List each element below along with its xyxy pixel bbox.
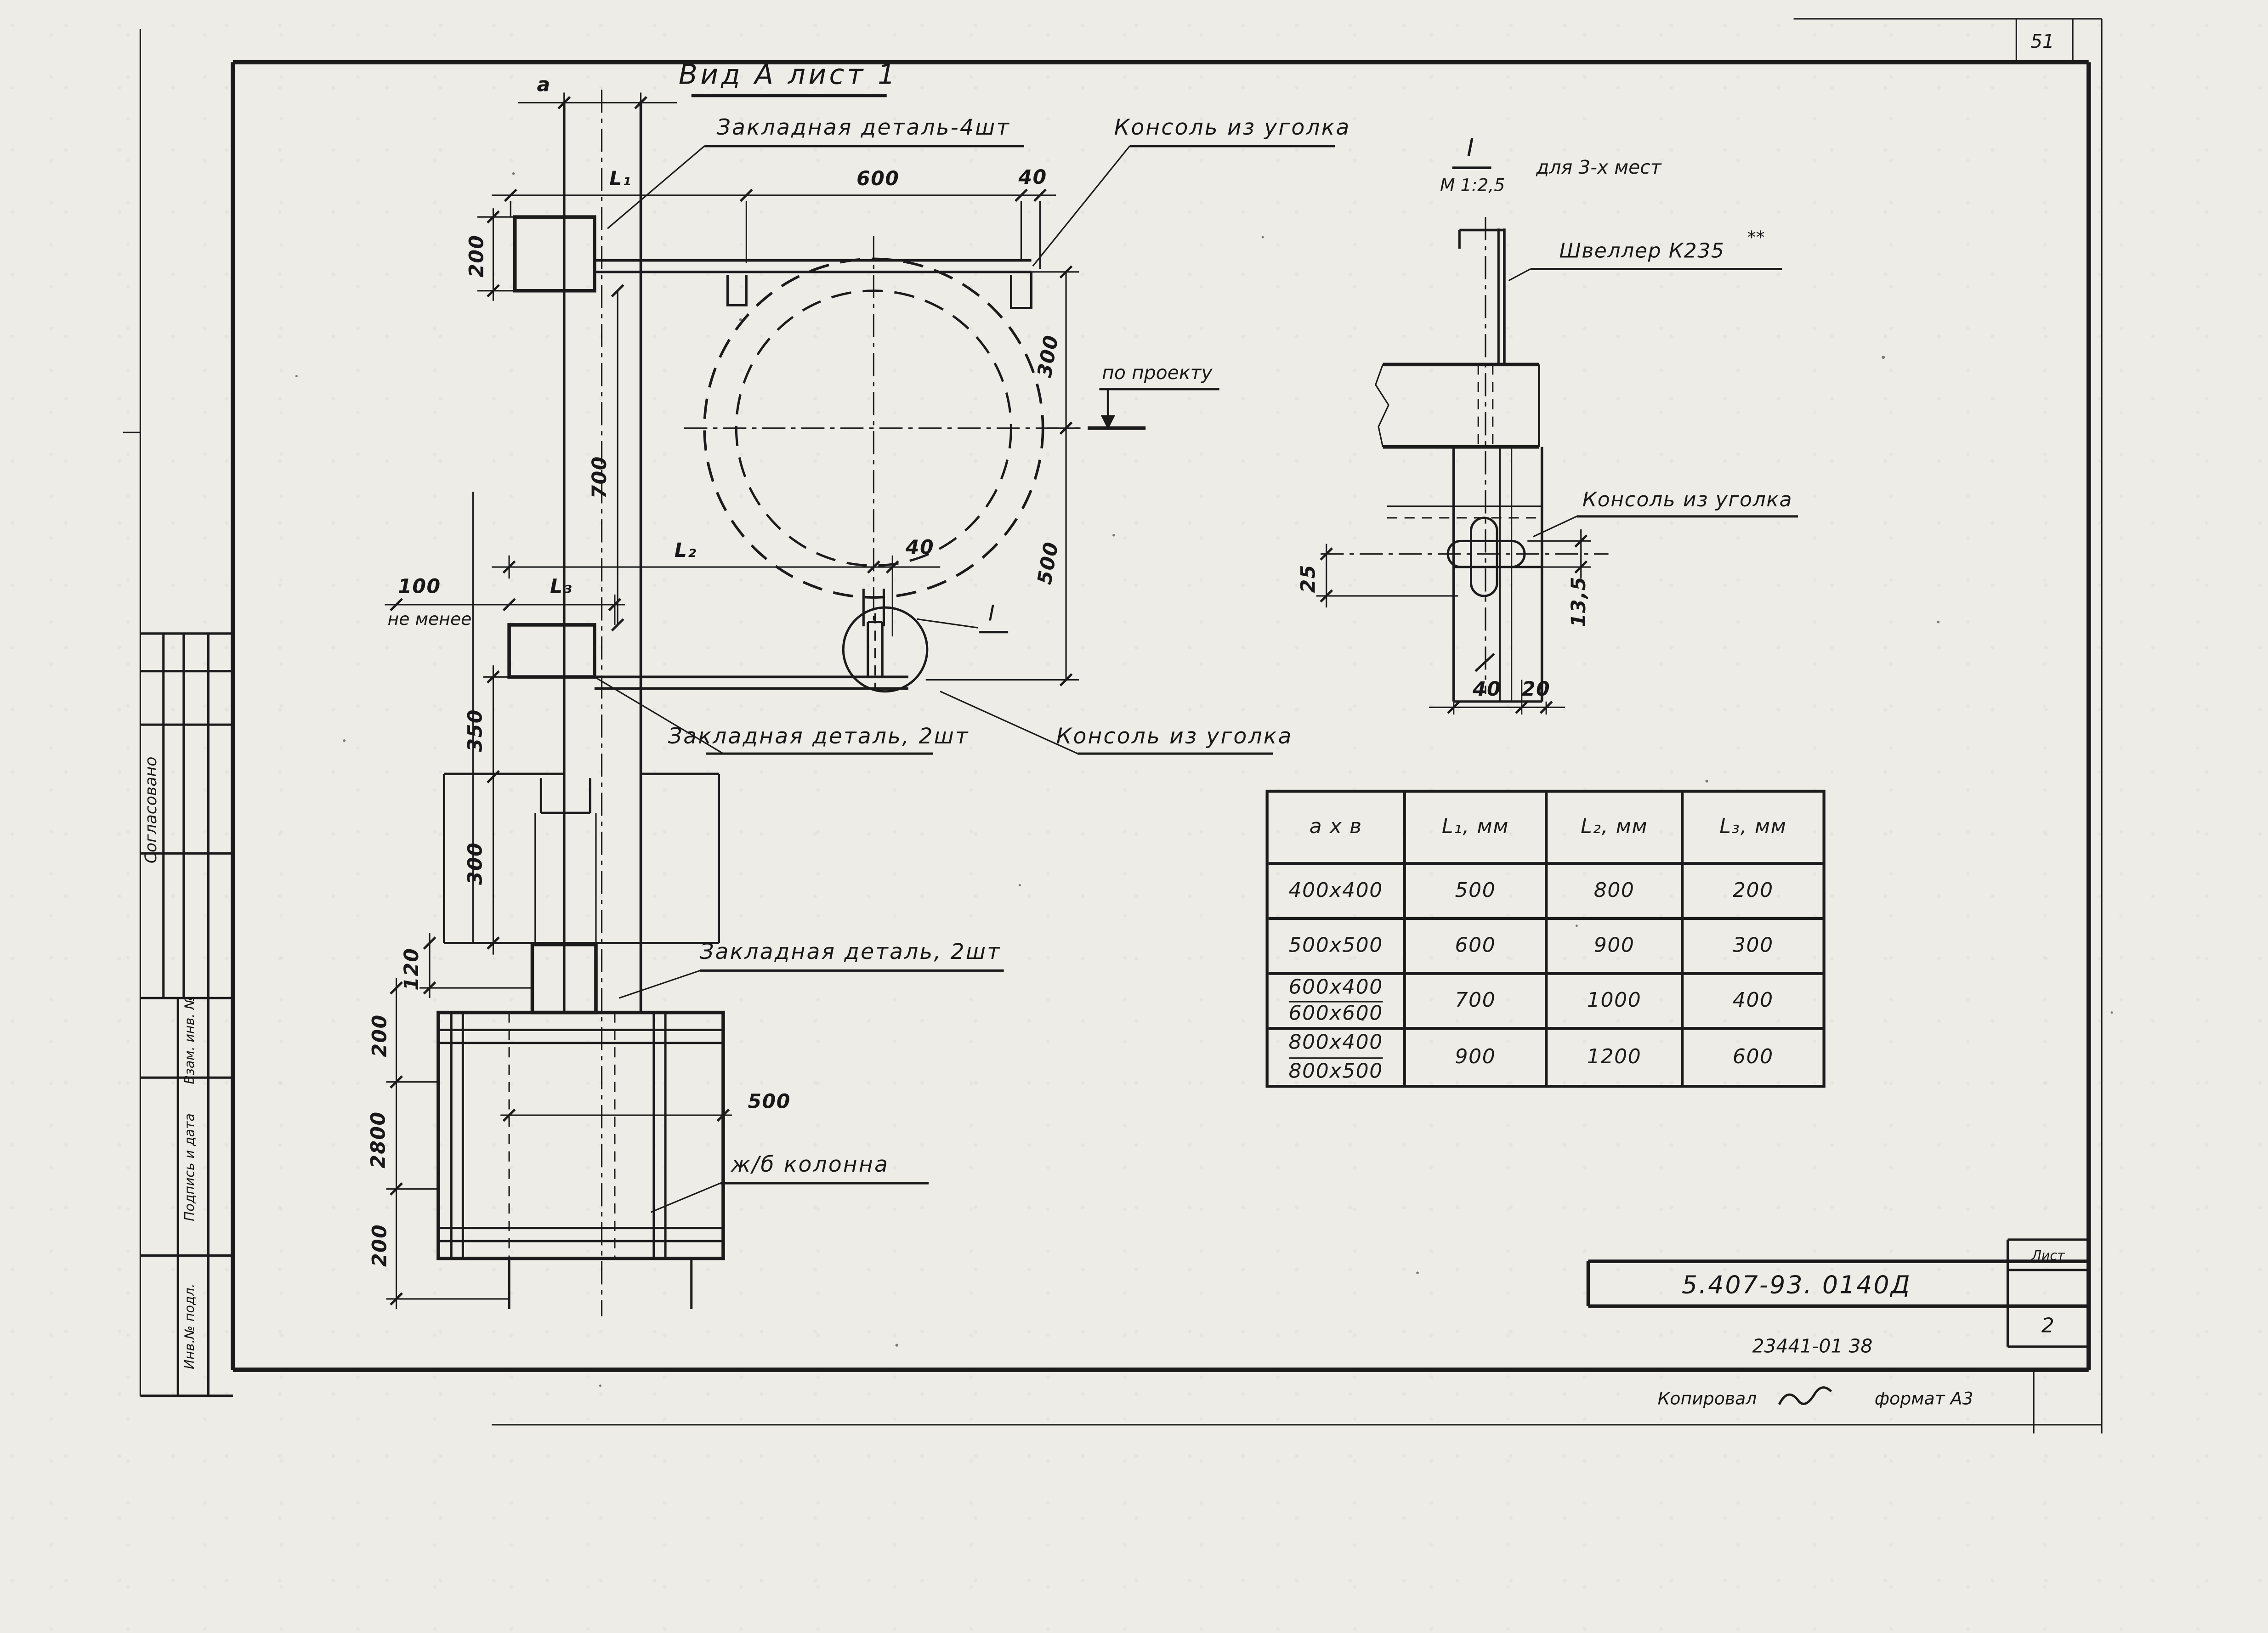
dim-200-plate-label: 200 [465,234,488,277]
table-cell: 800х500 [1288,1058,1383,1085]
dim-300-tank-label: 300 [1033,333,1063,379]
dim-20-label: 20 [1522,678,1550,701]
table-cell: 500х500 [1269,920,1406,975]
table-cell: 300 [1684,920,1822,975]
table-cell: 800х400 [1288,1030,1383,1058]
dim-l1-label: L₁ [609,168,632,190]
table-cell: 500 [1406,865,1548,920]
table-cell: 900 [1548,920,1684,975]
scale-wrapper: 51 Согласовано Взам. инв. № Подпись и да… [0,0,2268,1633]
stamp-code: 23441-01 38 [1752,1335,1872,1357]
table-cell-split: 600х400 600х600 [1269,975,1406,1030]
embedded-plate-2a-label: Закладная деталь, 2шт [668,724,970,749]
dimension-table: а х в L₁, мм L₂, мм L₃, мм 400х400 500 8… [1266,790,1826,1088]
column-label: ж/б колонна [731,1152,889,1177]
dim-500-tank-label: 500 [1033,540,1063,586]
table-cell: 600 [1406,920,1548,975]
drawing-sheet: 51 Согласовано Взам. инв. № Подпись и да… [0,0,2268,1633]
dim-500-col-label: 500 [748,1090,791,1113]
dim-700-label: 700 [589,456,611,499]
table-header-l1: L₁, мм [1406,793,1548,865]
format-label: формат А3 [1875,1389,1973,1409]
dim-2800-label: 2800 [367,1111,390,1168]
table-cell: 600 [1684,1030,1822,1085]
stamp-agreed-label: Согласовано [142,757,160,863]
scan-noise [295,172,2113,1387]
view-title: Вид А лист 1 [679,59,898,91]
dim-40-mid-label: 40 [905,537,934,559]
dim-25-label: 25 [1298,564,1320,593]
side-stamp: Согласовано Взам. инв. № Подпись и дата … [140,634,232,1396]
console-top-label: Консоль из уголка [1114,115,1351,140]
detail-view-scale: М 1:2,5 [1440,175,1505,195]
table-cell: 400 [1684,975,1822,1030]
by-project-label: по проекту [1102,362,1213,384]
main-view-linework [438,90,1081,1316]
doc-number: 5.407-93. 0140Д [1682,1270,1911,1299]
console-right-label: Консоль из уголка [1582,488,1792,511]
dim-40-top-label: 40 [1018,166,1047,189]
stamp-vzam-label: Взам. инв. № [182,996,197,1084]
sheet-number: 2 [2041,1314,2055,1337]
table-cell: 900 [1406,1030,1548,1085]
dim-a-label: a [537,74,551,96]
table-cell: 200 [1684,865,1822,920]
main-view-labels: Вид А лист 1 Закладная деталь-4шт Консол… [595,59,1351,1212]
table-cell-split: 800х400 800х500 [1269,1030,1406,1085]
dim-200-upper-label: 200 [369,1014,391,1057]
table-header-size: а х в [1269,793,1406,865]
embedded-plate-2b-label: Закладная деталь, 2шт [700,939,1001,964]
table-cell: 1200 [1548,1030,1684,1085]
stamp-podpis-label: Подпись и дата [182,1113,197,1221]
detail-view-linework: I М 1:2,5 для 3-х мест 25 [1298,133,1798,714]
dim-600-label: 600 [856,168,899,190]
title-block: 5.407-93. 0140Д Лист 2 23441-01 38 Копир… [1588,1240,2089,1434]
detail-view-note: для 3-х мест [1536,156,1662,178]
table-header-l2: L₂, мм [1548,793,1684,865]
dim-l2-label: L₂ [675,539,697,562]
channel-stars: ** [1747,227,1765,247]
console-mid-label: Консоль из уголка [1056,724,1293,749]
dim-200-lower-label: 200 [369,1224,391,1267]
dim-100-label: 100 [398,576,441,598]
table-cell: 600х600 [1288,1002,1383,1027]
sheet-word-label: Лист [2031,1248,2065,1263]
stamp-inv-label: Инв.№ подл. [182,1283,197,1369]
detail-mark-label: I [988,601,996,626]
dim-not-less-label: не менее [388,609,472,629]
page-corner-number: 51 [2030,30,2054,52]
dim-13-5-label: 13,5 [1568,576,1590,627]
main-view-dimensions: a L₁ 600 40 200 700 300 500 по проекту [367,74,1219,1309]
dim-350-label: 350 [464,709,487,752]
dim-120-label: 120 [401,947,423,990]
table-header-l3: L₃, мм [1684,793,1822,865]
dim-300-col-label: 300 [464,842,487,885]
detail-view-mark: I [1467,133,1475,162]
channel-label: Швеллер К235 [1559,239,1725,262]
table-cell: 800 [1548,865,1684,920]
drawing-canvas: 51 Согласовано Взам. инв. № Подпись и да… [0,0,2268,1633]
signature-mark [1779,1388,1831,1405]
table-cell: 700 [1406,975,1548,1030]
table-cell: 1000 [1548,975,1684,1030]
table-cell: 400х400 [1269,865,1406,920]
embedded-plate-4-label: Закладная деталь-4шт [717,115,1011,140]
table-cell: 600х400 [1288,975,1383,1002]
copied-by-label: Копировал [1658,1389,1757,1409]
dim-40-detail-label: 40 [1472,678,1501,701]
dim-l3-label: L₃ [550,576,573,598]
